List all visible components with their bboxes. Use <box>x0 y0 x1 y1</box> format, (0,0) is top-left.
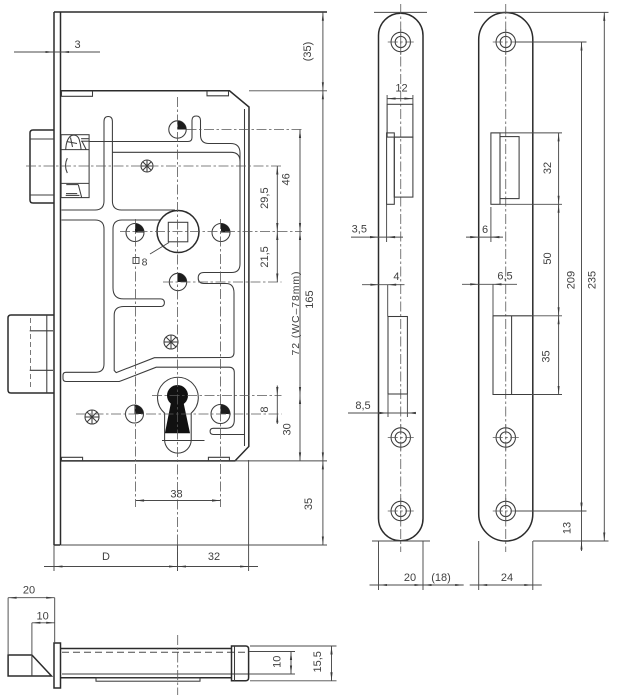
svg-text:72 (WC–78mm): 72 (WC–78mm) <box>290 271 302 356</box>
svg-text:38: 38 <box>170 489 182 501</box>
svg-text:46: 46 <box>280 173 292 185</box>
svg-text:13: 13 <box>562 522 574 534</box>
svg-text:6,5: 6,5 <box>497 270 512 282</box>
svg-text:(18): (18) <box>431 572 451 584</box>
svg-text:29,5: 29,5 <box>259 187 271 208</box>
svg-text:8: 8 <box>142 257 148 269</box>
svg-text:32: 32 <box>542 162 554 174</box>
svg-text:8,5: 8,5 <box>355 400 370 412</box>
svg-text:8: 8 <box>259 406 271 412</box>
svg-text:30: 30 <box>282 423 294 435</box>
svg-text:10: 10 <box>36 610 48 622</box>
svg-text:3,5: 3,5 <box>352 224 367 236</box>
svg-text:209: 209 <box>565 271 577 289</box>
svg-text:32: 32 <box>208 551 220 563</box>
svg-text:12: 12 <box>395 82 407 94</box>
svg-text:165: 165 <box>304 290 316 308</box>
svg-text:50: 50 <box>542 252 554 264</box>
svg-text:35: 35 <box>541 350 553 362</box>
svg-text:35: 35 <box>303 498 315 510</box>
svg-text:15,5: 15,5 <box>312 651 324 672</box>
svg-text:20: 20 <box>23 584 35 596</box>
svg-text:3: 3 <box>74 39 80 51</box>
svg-text:10: 10 <box>272 656 284 668</box>
svg-text:20: 20 <box>404 572 416 584</box>
svg-text:24: 24 <box>501 572 513 584</box>
svg-text:235: 235 <box>587 271 599 289</box>
svg-text:6: 6 <box>482 224 488 236</box>
svg-text:4: 4 <box>393 271 399 283</box>
svg-text:D: D <box>102 551 110 563</box>
svg-text:21,5: 21,5 <box>259 246 271 267</box>
svg-text:(35): (35) <box>302 42 314 62</box>
